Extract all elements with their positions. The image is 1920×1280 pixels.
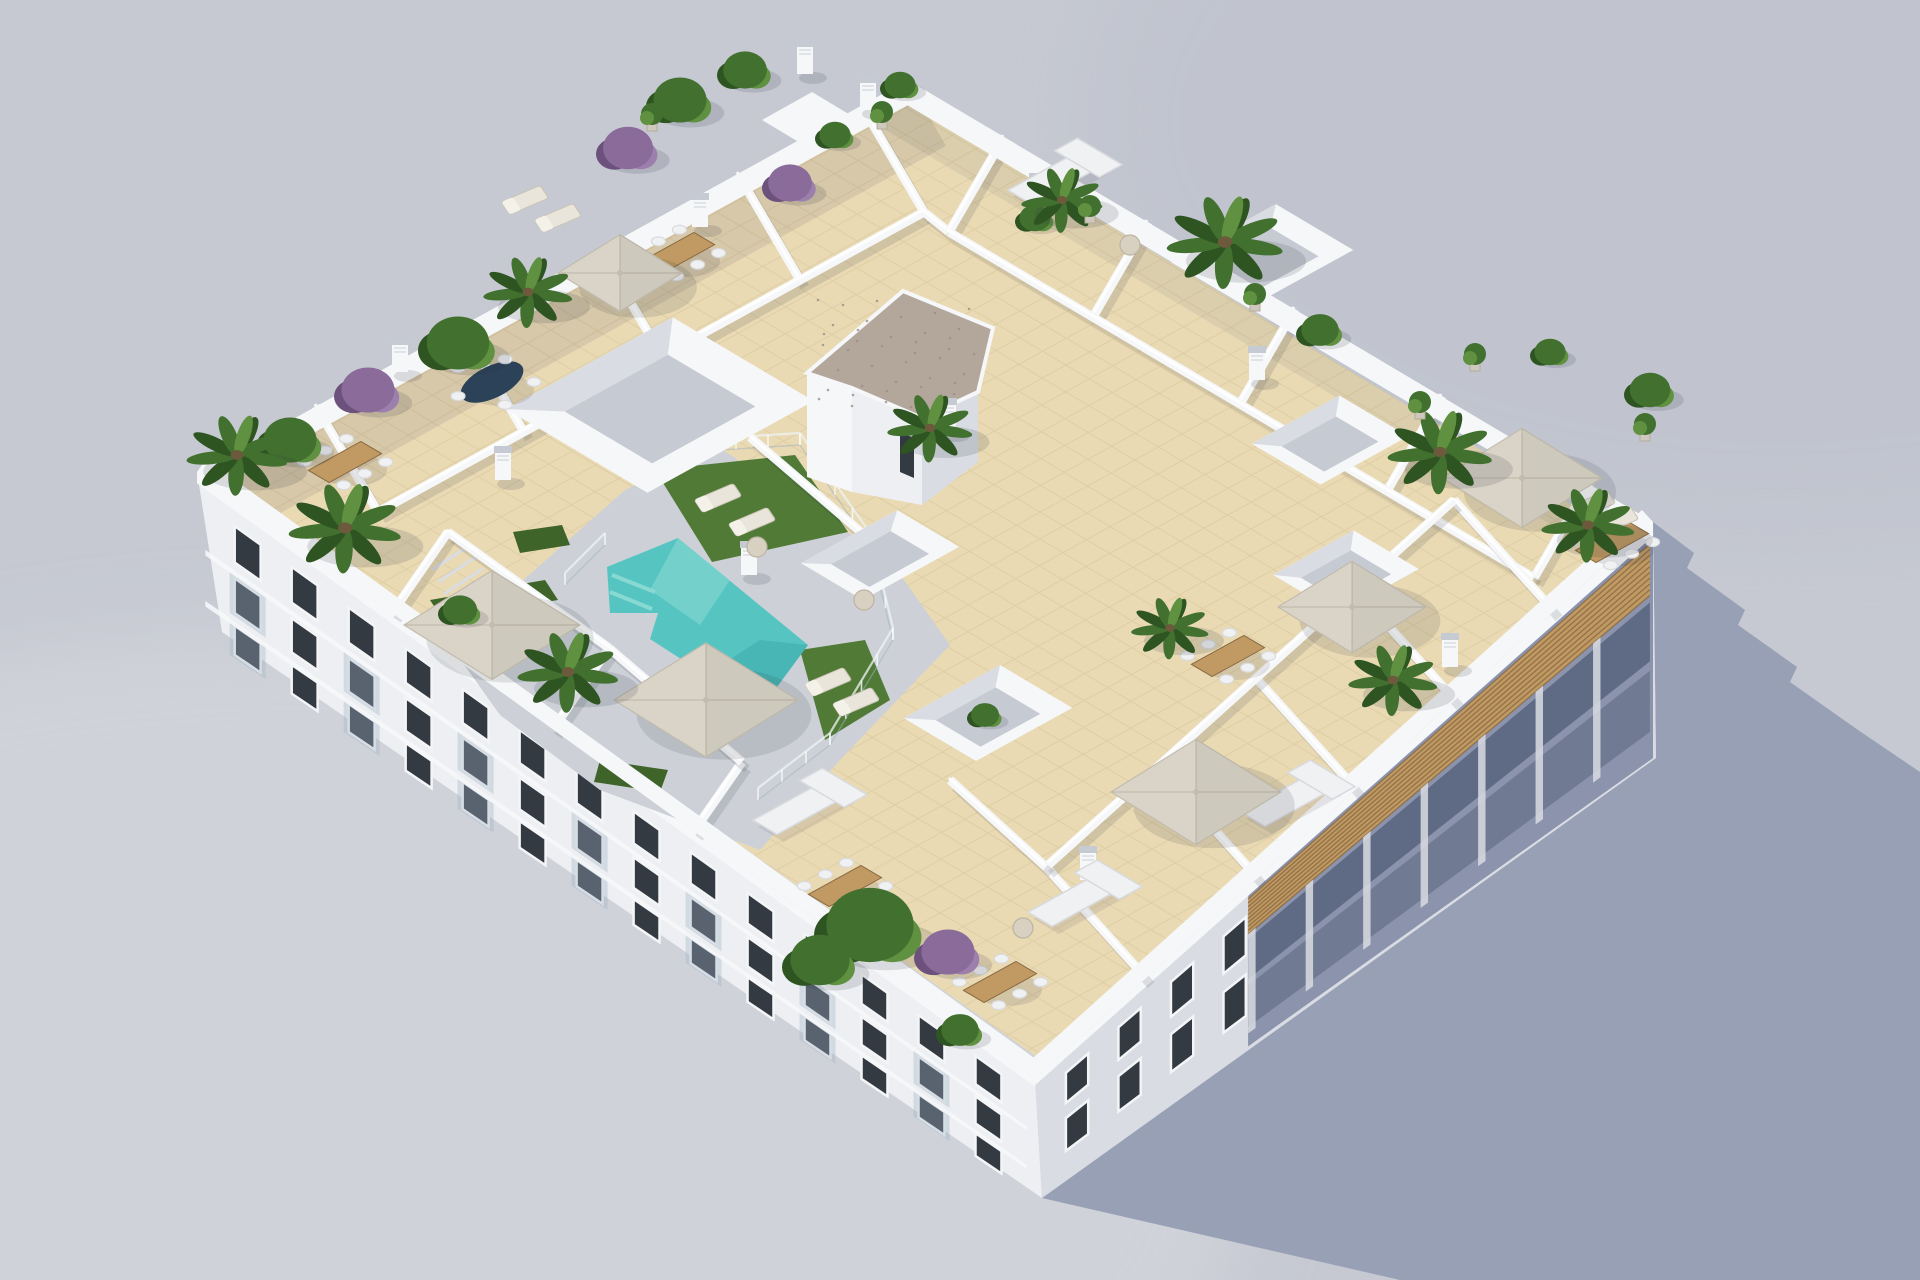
tree-crown xyxy=(427,316,489,369)
vent-cap xyxy=(796,40,814,47)
pot-foliage-light xyxy=(870,109,884,123)
gravel-dot xyxy=(920,386,923,389)
gravel-dot xyxy=(817,299,820,302)
balcony-pier xyxy=(1536,686,1543,825)
gravel-dot xyxy=(948,348,951,351)
vent-body xyxy=(797,44,813,74)
chair xyxy=(797,881,811,890)
gravel-dot xyxy=(837,369,840,372)
gravel-dot xyxy=(871,365,874,368)
tree-crown xyxy=(819,122,850,149)
chair xyxy=(712,249,726,258)
chair xyxy=(994,954,1008,963)
parasol-pole xyxy=(703,697,709,703)
palm-trunk xyxy=(231,450,243,460)
palm-trunk xyxy=(562,667,574,677)
gravel-dot xyxy=(963,373,966,376)
chair xyxy=(1013,989,1027,998)
balcony-pier xyxy=(1593,637,1600,783)
gravel-dot xyxy=(822,344,825,347)
gravel-dot xyxy=(914,352,917,355)
tree-crown xyxy=(1301,314,1338,346)
chair xyxy=(1034,978,1048,987)
gravel-dot xyxy=(832,324,835,327)
vent-cap xyxy=(494,446,512,453)
balcony-pier xyxy=(1248,928,1255,1033)
palm-trunk xyxy=(925,424,936,432)
palm-trunk xyxy=(1582,520,1594,529)
purple-bush-crown xyxy=(768,164,812,201)
gravel-dot xyxy=(866,320,869,323)
gravel-dot xyxy=(900,316,903,319)
gravel-dot xyxy=(924,332,927,335)
gravel-dot xyxy=(818,398,821,401)
balcony-pier xyxy=(1306,879,1313,991)
tree-crown xyxy=(884,72,915,99)
gravel-dot xyxy=(968,308,971,311)
rooftop-render-canvas xyxy=(0,0,1920,1280)
gravel-dot xyxy=(886,390,889,393)
gravel-dot xyxy=(954,382,957,385)
palm-trunk xyxy=(1165,624,1175,632)
gravel-dot xyxy=(842,304,845,307)
gravel-dot xyxy=(958,328,961,331)
gravel-dot xyxy=(910,406,913,409)
purple-bush-crown xyxy=(603,127,653,169)
pot-foliage-light xyxy=(1463,351,1477,365)
tree-crown xyxy=(1534,339,1565,366)
gravel-dot xyxy=(953,393,956,396)
gravel-dot xyxy=(885,401,888,404)
pot-foliage-light xyxy=(1243,291,1257,305)
gravel-dot xyxy=(915,341,918,344)
chair xyxy=(1604,561,1618,570)
gravel-dot xyxy=(939,357,942,360)
vent-body xyxy=(692,197,708,227)
gravel-dot xyxy=(890,336,893,339)
pouf-table xyxy=(1013,918,1033,938)
chair xyxy=(672,225,686,234)
balcony-pier xyxy=(1421,783,1428,909)
palm-trunk xyxy=(338,522,352,533)
vent-body xyxy=(495,450,511,480)
pouf-table xyxy=(747,537,767,557)
pot-foliage-light xyxy=(1633,421,1647,435)
tree-crown xyxy=(1630,373,1671,407)
chair xyxy=(451,392,465,401)
palm-trunk xyxy=(1218,236,1232,248)
tree-crown xyxy=(723,51,767,88)
palm-trunk xyxy=(522,288,533,297)
gravel-dot xyxy=(861,385,864,388)
chair xyxy=(651,237,665,246)
chair xyxy=(691,260,705,269)
vent-cap xyxy=(1441,633,1459,640)
balcony-pier xyxy=(1478,734,1485,866)
gravel-dot xyxy=(876,300,879,303)
parasol-pole xyxy=(1349,604,1355,610)
pouf-table xyxy=(1120,235,1140,255)
chair xyxy=(1241,663,1255,672)
tree-crown xyxy=(971,703,999,727)
parasol-pole xyxy=(489,622,495,628)
vent-body xyxy=(1442,637,1458,667)
gravel-dot xyxy=(934,312,937,315)
tree-crown xyxy=(941,1014,978,1046)
tree-crown xyxy=(790,935,849,985)
chair xyxy=(527,378,541,387)
gravel-dot xyxy=(881,345,884,348)
vent-cap xyxy=(691,193,709,200)
tree-crown xyxy=(443,595,477,624)
purple-bush-crown xyxy=(341,367,394,412)
pot-foliage-light xyxy=(640,111,654,125)
gravel-dot xyxy=(827,389,830,392)
chair xyxy=(839,858,853,867)
bulkhead-wall xyxy=(807,373,852,492)
gravel-dot xyxy=(973,353,976,356)
gravel-dot xyxy=(823,333,826,336)
chair xyxy=(818,870,832,879)
parasol-pole xyxy=(617,270,623,276)
balcony-pier xyxy=(1363,831,1370,950)
gravel-dot xyxy=(852,394,855,397)
gravel-dot xyxy=(847,349,850,352)
chair xyxy=(358,469,372,478)
vent-cap xyxy=(1079,846,1097,853)
chair xyxy=(992,1001,1006,1010)
gravel-dot xyxy=(929,377,932,380)
chair xyxy=(339,434,353,443)
chair xyxy=(337,481,351,490)
palm-trunk xyxy=(1057,196,1067,204)
gravel-dot xyxy=(857,329,860,332)
chair xyxy=(498,400,512,409)
gravel-dot xyxy=(895,381,898,384)
chair xyxy=(379,458,393,467)
purple-bush-crown xyxy=(921,929,974,974)
vent-cap xyxy=(1248,346,1266,353)
gravel-dot xyxy=(949,337,952,340)
architectural-render: Aerial 3D architectural rendering of a w… xyxy=(0,0,1920,1280)
vent-body xyxy=(392,342,408,372)
gravel-dot xyxy=(851,405,854,408)
chair xyxy=(1220,675,1234,684)
parasol-pole xyxy=(1193,789,1199,795)
palm-trunk xyxy=(1434,447,1447,457)
gravel-dot xyxy=(856,340,859,343)
vent-cap xyxy=(391,338,409,345)
vent-cap xyxy=(859,76,877,83)
chair xyxy=(1262,652,1276,661)
parasol-pole xyxy=(1519,475,1525,481)
pot-foliage-light xyxy=(1078,203,1092,217)
palm-trunk xyxy=(1387,676,1398,685)
vent-body xyxy=(1249,350,1265,380)
gravel-dot xyxy=(905,361,908,364)
pouf-table xyxy=(854,590,874,610)
pot-foliage-light xyxy=(1408,399,1422,413)
chair xyxy=(1222,628,1236,637)
